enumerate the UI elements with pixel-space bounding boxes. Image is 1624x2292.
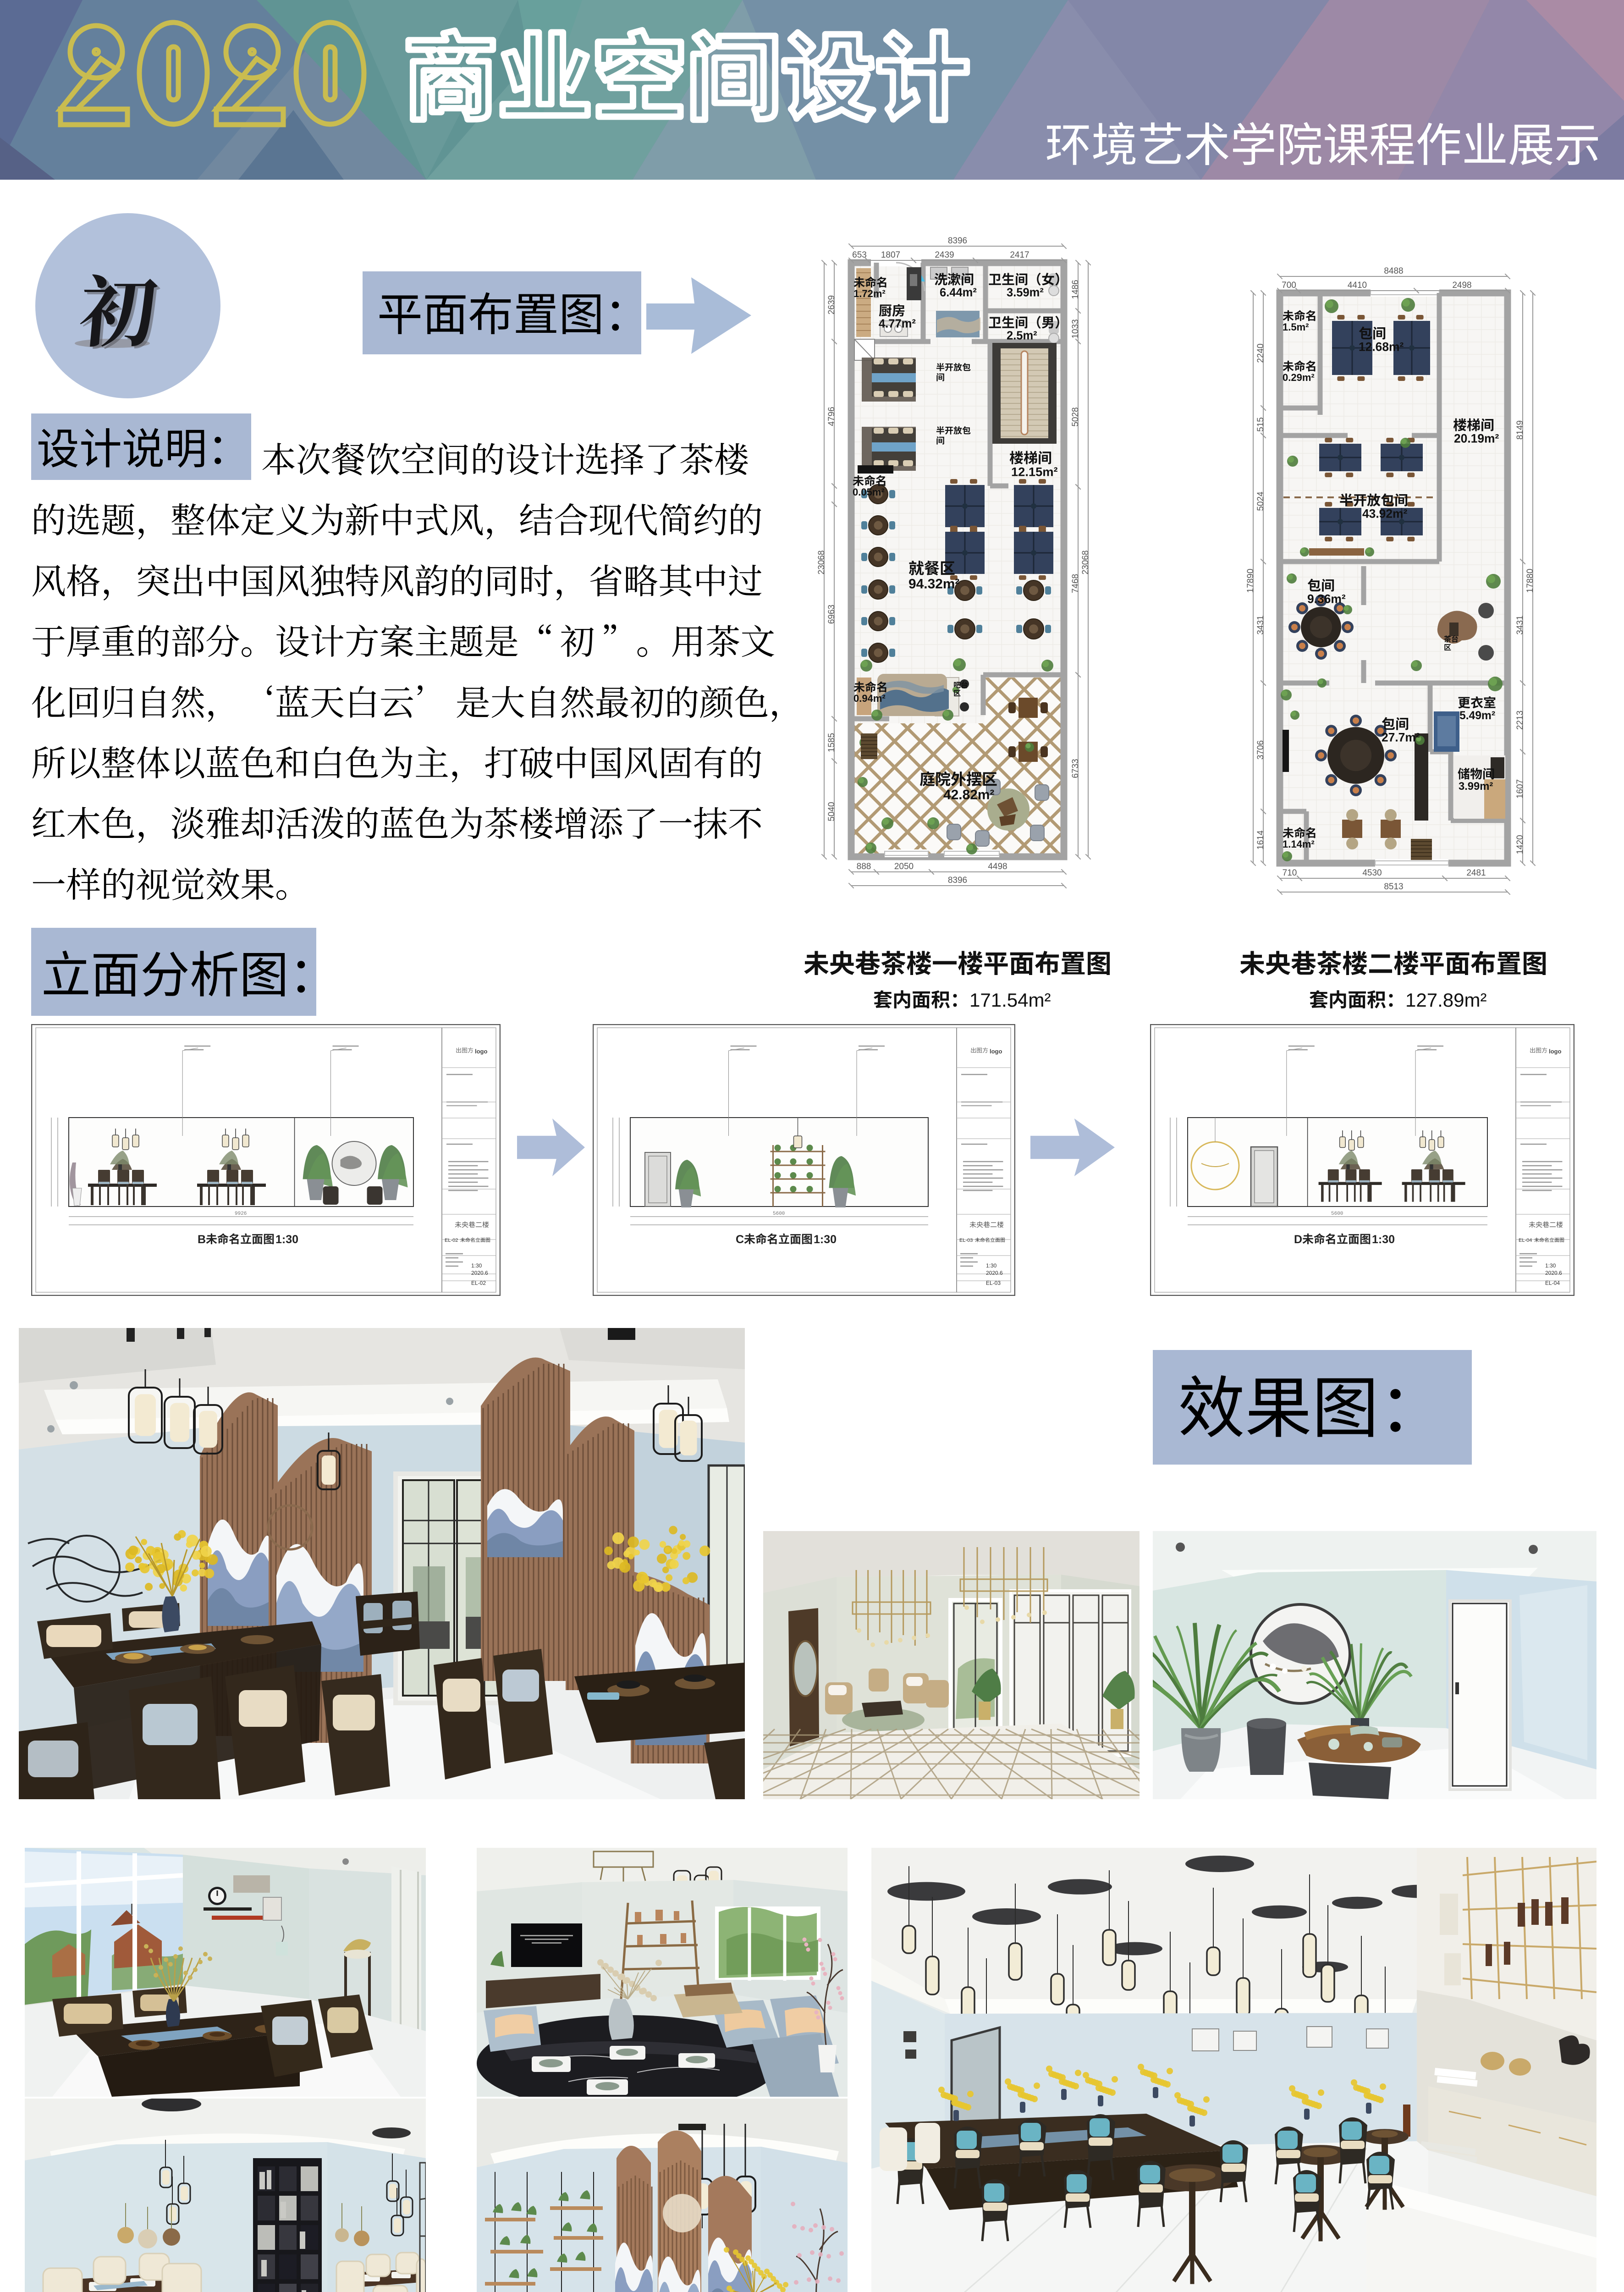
svg-text:1.5m²: 1.5m² bbox=[1283, 321, 1309, 333]
svg-text:9.36m²: 9.36m² bbox=[1307, 592, 1346, 606]
svg-text:8396: 8396 bbox=[948, 236, 967, 246]
svg-text:B: B bbox=[198, 1233, 206, 1246]
svg-text:12.68m²: 12.68m² bbox=[1359, 340, 1404, 354]
svg-text:5.49m²: 5.49m² bbox=[1459, 710, 1495, 722]
svg-text:1614: 1614 bbox=[1256, 830, 1266, 850]
svg-text:logo: logo bbox=[1549, 1048, 1561, 1055]
svg-text:2498: 2498 bbox=[1452, 281, 1471, 290]
svg-text:2050: 2050 bbox=[894, 862, 914, 871]
svg-text:515: 515 bbox=[1256, 417, 1266, 432]
svg-text:0.29m²: 0.29m² bbox=[1283, 372, 1315, 383]
svg-text:EL-04: EL-04 bbox=[1519, 1238, 1532, 1243]
svg-text:17880: 17880 bbox=[1525, 569, 1535, 593]
svg-text:EL-02: EL-02 bbox=[445, 1238, 458, 1243]
svg-text:EL-03: EL-03 bbox=[959, 1238, 973, 1243]
svg-text:1:30: 1:30 bbox=[1545, 1262, 1556, 1269]
svg-text:1420: 1420 bbox=[1515, 835, 1525, 854]
svg-text:1:30: 1:30 bbox=[471, 1262, 482, 1269]
svg-text:3431: 3431 bbox=[1256, 615, 1266, 634]
svg-text:17890: 17890 bbox=[1246, 569, 1255, 593]
svg-text:0.94m²: 0.94m² bbox=[853, 693, 886, 704]
svg-text:23068: 23068 bbox=[817, 551, 826, 575]
svg-text:5028: 5028 bbox=[1071, 407, 1080, 426]
svg-text:6733: 6733 bbox=[1071, 759, 1080, 778]
svg-text:3.99m²: 3.99m² bbox=[1459, 780, 1493, 793]
svg-text:7468: 7468 bbox=[1071, 574, 1080, 593]
svg-text:4410: 4410 bbox=[1348, 281, 1367, 290]
svg-text:653: 653 bbox=[852, 250, 867, 260]
svg-text:1807: 1807 bbox=[881, 250, 900, 260]
svg-text:8513: 8513 bbox=[1384, 882, 1403, 892]
svg-text:710: 710 bbox=[1283, 868, 1297, 878]
svg-text:23068: 23068 bbox=[1081, 551, 1090, 575]
svg-text:1033: 1033 bbox=[1071, 319, 1080, 338]
svg-text:1585: 1585 bbox=[827, 733, 837, 752]
svg-text:12.15m²: 12.15m² bbox=[1011, 465, 1058, 479]
svg-text:1:30: 1:30 bbox=[814, 1233, 837, 1246]
svg-text:1.72m²: 1.72m² bbox=[853, 288, 886, 299]
svg-text:logo: logo bbox=[990, 1048, 1002, 1055]
svg-text:888: 888 bbox=[857, 862, 871, 871]
svg-text:2481: 2481 bbox=[1466, 868, 1486, 878]
svg-text:2240: 2240 bbox=[1256, 343, 1266, 363]
svg-text:1.14m²: 1.14m² bbox=[1283, 838, 1315, 850]
svg-text:3706: 3706 bbox=[1256, 740, 1266, 760]
svg-text:1607: 1607 bbox=[1515, 779, 1525, 799]
svg-text:4498: 4498 bbox=[988, 862, 1007, 871]
svg-text:1:30: 1:30 bbox=[986, 1262, 997, 1269]
svg-text:2.5m²: 2.5m² bbox=[1007, 330, 1037, 342]
svg-text:5024: 5024 bbox=[1256, 491, 1266, 511]
svg-text:2213: 2213 bbox=[1515, 711, 1525, 730]
svg-text:3.59m²: 3.59m² bbox=[1007, 286, 1044, 299]
svg-text:2439: 2439 bbox=[935, 250, 954, 260]
svg-text:42.82m²: 42.82m² bbox=[943, 787, 994, 802]
svg-text:8396: 8396 bbox=[948, 876, 967, 885]
svg-text:9926: 9926 bbox=[235, 1211, 247, 1217]
svg-text:700: 700 bbox=[1282, 281, 1296, 290]
svg-text:EL-04: EL-04 bbox=[1545, 1280, 1560, 1286]
svg-text:1:30: 1:30 bbox=[1372, 1233, 1395, 1246]
svg-text:43.92m²: 43.92m² bbox=[1362, 507, 1408, 521]
svg-text:logo: logo bbox=[475, 1048, 487, 1055]
svg-text:5040: 5040 bbox=[827, 802, 837, 821]
svg-text:5600: 5600 bbox=[773, 1211, 785, 1217]
svg-text:0.05m²: 0.05m² bbox=[853, 486, 885, 498]
svg-text:2020.6: 2020.6 bbox=[471, 1270, 488, 1276]
svg-text:2417: 2417 bbox=[1010, 250, 1029, 260]
svg-text:20.19m²: 20.19m² bbox=[1454, 432, 1499, 446]
svg-text:2020.6: 2020.6 bbox=[1545, 1270, 1562, 1276]
svg-text:1486: 1486 bbox=[1071, 280, 1080, 299]
svg-text:127.89m²: 127.89m² bbox=[1405, 989, 1486, 1011]
svg-text:C: C bbox=[736, 1233, 744, 1246]
svg-text:D: D bbox=[1294, 1233, 1302, 1246]
svg-text:27.7m²: 27.7m² bbox=[1382, 731, 1420, 744]
svg-text:2639: 2639 bbox=[827, 295, 837, 314]
svg-text:8149: 8149 bbox=[1515, 420, 1525, 440]
svg-text:8488: 8488 bbox=[1384, 266, 1403, 276]
svg-text:1:30: 1:30 bbox=[275, 1233, 298, 1246]
svg-text:2020.6: 2020.6 bbox=[986, 1270, 1003, 1276]
svg-text:94.32m²: 94.32m² bbox=[908, 576, 959, 591]
svg-text:5600: 5600 bbox=[1331, 1211, 1343, 1217]
svg-text:EL-03: EL-03 bbox=[986, 1280, 1001, 1286]
svg-text:6963: 6963 bbox=[827, 605, 837, 624]
svg-text:3431: 3431 bbox=[1515, 615, 1525, 634]
svg-text:6.44m²: 6.44m² bbox=[940, 286, 977, 299]
svg-text:171.54m²: 171.54m² bbox=[969, 989, 1051, 1011]
svg-text:EL-02: EL-02 bbox=[471, 1280, 486, 1286]
svg-text:4530: 4530 bbox=[1362, 868, 1382, 878]
svg-text:4.77m²: 4.77m² bbox=[879, 318, 916, 331]
svg-text:4796: 4796 bbox=[827, 407, 837, 426]
